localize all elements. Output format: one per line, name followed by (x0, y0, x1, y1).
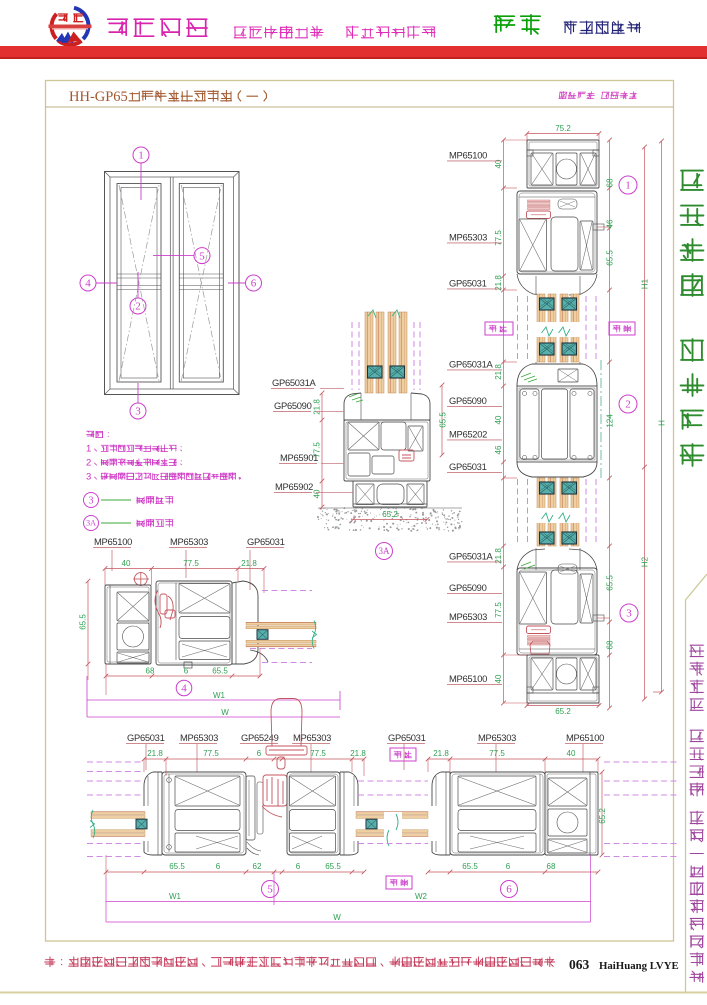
svg-text:21.8: 21.8 (433, 749, 449, 758)
svg-text:40: 40 (567, 749, 576, 758)
svg-text:46: 46 (606, 219, 615, 228)
svg-text:GP65031: GP65031 (127, 732, 165, 743)
svg-text:MP65902: MP65902 (275, 481, 313, 492)
svg-text:40: 40 (494, 674, 503, 683)
svg-text:65.5: 65.5 (439, 412, 448, 428)
svg-text:GP65031A: GP65031A (449, 551, 494, 562)
svg-text:GP65031: GP65031 (247, 536, 285, 547)
svg-text:2: 2 (625, 399, 631, 411)
svg-text:GP65031A: GP65031A (272, 377, 317, 388)
svg-text:77.5: 77.5 (203, 749, 219, 758)
svg-text:W1: W1 (213, 691, 226, 700)
svg-text:65.5: 65.5 (79, 614, 88, 630)
svg-text:65.5: 65.5 (606, 575, 615, 591)
svg-text:6: 6 (251, 278, 257, 290)
svg-text:68: 68 (606, 178, 615, 187)
svg-text:77.5: 77.5 (489, 749, 505, 758)
svg-text:GP65090: GP65090 (274, 400, 312, 411)
svg-text:6: 6 (506, 862, 511, 871)
svg-text:MP65303: MP65303 (449, 611, 487, 622)
svg-text:62: 62 (253, 862, 262, 871)
svg-text:MP65303: MP65303 (293, 732, 331, 743)
svg-text:21.8: 21.8 (147, 749, 163, 758)
svg-text:GP65031A: GP65031A (449, 359, 494, 370)
svg-text:3: 3 (86, 472, 91, 483)
svg-text:H: H (658, 420, 667, 426)
svg-text:W1: W1 (169, 892, 182, 901)
svg-text:3A: 3A (86, 519, 96, 528)
svg-text:77.5: 77.5 (310, 749, 326, 758)
svg-text:HH-GP65: HH-GP65 (69, 89, 128, 105)
svg-text:3A: 3A (379, 546, 391, 556)
svg-text:4: 4 (181, 683, 187, 695)
svg-text:77.5: 77.5 (183, 559, 199, 568)
svg-text:21.8: 21.8 (350, 749, 366, 758)
svg-text:W2: W2 (415, 892, 428, 901)
svg-text:46: 46 (494, 445, 503, 454)
svg-text:21.8: 21.8 (494, 275, 503, 291)
svg-text:3: 3 (89, 495, 94, 506)
svg-text:H2: H2 (641, 556, 650, 567)
svg-text:65.5: 65.5 (462, 862, 478, 871)
svg-text:5: 5 (199, 250, 205, 262)
svg-text:MP65303: MP65303 (170, 536, 208, 547)
svg-text:77.5: 77.5 (494, 230, 503, 246)
svg-text:MP65303: MP65303 (180, 732, 218, 743)
svg-text:GP65031: GP65031 (449, 461, 487, 472)
svg-text:21.8: 21.8 (241, 559, 257, 568)
svg-text:65.5: 65.5 (212, 667, 228, 676)
svg-text:3: 3 (626, 608, 632, 620)
svg-text:GP65090: GP65090 (449, 582, 487, 593)
svg-text:68: 68 (547, 862, 556, 871)
svg-text:40: 40 (494, 415, 503, 424)
svg-text:GP65249: GP65249 (241, 732, 279, 743)
svg-text:MP65100: MP65100 (449, 150, 487, 161)
svg-text:HaiHuang LVYE: HaiHuang LVYE (599, 960, 679, 972)
svg-text:6: 6 (296, 862, 301, 871)
svg-text:65.5: 65.5 (325, 862, 341, 871)
svg-text:MP65100: MP65100 (566, 732, 604, 743)
svg-text:65.2: 65.2 (382, 510, 398, 519)
svg-text:1: 1 (625, 180, 631, 192)
svg-text:MP65202: MP65202 (449, 429, 487, 440)
svg-text:GP65090: GP65090 (449, 395, 487, 406)
svg-text:5: 5 (267, 884, 273, 896)
svg-text:W: W (221, 708, 229, 717)
svg-text:MP65100: MP65100 (449, 673, 487, 684)
svg-text:65.5: 65.5 (169, 862, 185, 871)
svg-text:1: 1 (86, 444, 91, 455)
svg-text:21.8: 21.8 (494, 548, 503, 564)
svg-text:124: 124 (606, 414, 615, 428)
svg-text:6: 6 (257, 749, 262, 758)
svg-text:65.2: 65.2 (598, 808, 607, 824)
svg-text:6: 6 (184, 667, 189, 676)
svg-text:21.8: 21.8 (494, 364, 503, 380)
svg-text:77.5: 77.5 (494, 602, 503, 618)
svg-text:GP65031: GP65031 (449, 278, 487, 289)
svg-text:H1: H1 (641, 278, 650, 289)
svg-text:21.8: 21.8 (313, 399, 322, 415)
svg-text:40: 40 (313, 489, 322, 498)
svg-text:65.2: 65.2 (555, 707, 571, 716)
svg-text:063: 063 (569, 957, 590, 972)
svg-text:75.2: 75.2 (555, 124, 571, 133)
svg-text:MP65303: MP65303 (478, 732, 516, 743)
svg-text:40: 40 (122, 559, 131, 568)
svg-text:6: 6 (216, 862, 221, 871)
svg-text:W: W (333, 913, 341, 922)
svg-text:68: 68 (606, 640, 615, 649)
svg-text:40: 40 (494, 159, 503, 168)
svg-text:3: 3 (135, 406, 141, 418)
svg-text:6: 6 (506, 884, 512, 896)
svg-text:68: 68 (146, 667, 155, 676)
svg-text:2: 2 (135, 301, 141, 313)
svg-text:MP65303: MP65303 (449, 232, 487, 243)
svg-text:1: 1 (138, 150, 144, 162)
svg-text:4: 4 (85, 278, 91, 290)
svg-text:MP65901: MP65901 (280, 452, 318, 463)
svg-text:GP65031: GP65031 (388, 732, 426, 743)
svg-text:MP65100: MP65100 (94, 536, 132, 547)
svg-text:65.5: 65.5 (606, 250, 615, 266)
svg-text:2: 2 (86, 458, 91, 469)
